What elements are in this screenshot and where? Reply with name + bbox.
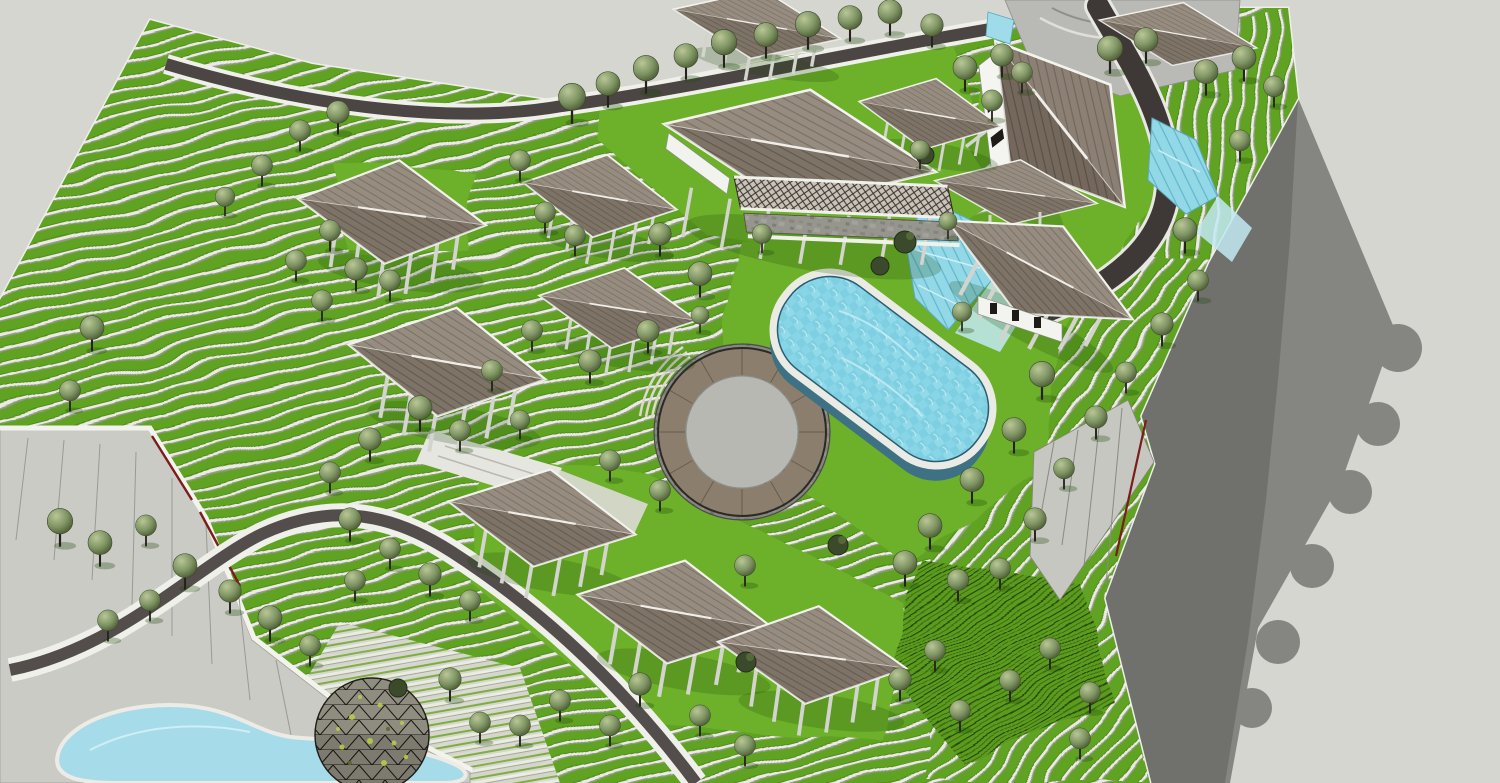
geodesic-dome bbox=[315, 678, 429, 783]
site-render bbox=[0, 0, 1500, 783]
site-render-canvas bbox=[0, 0, 1500, 783]
